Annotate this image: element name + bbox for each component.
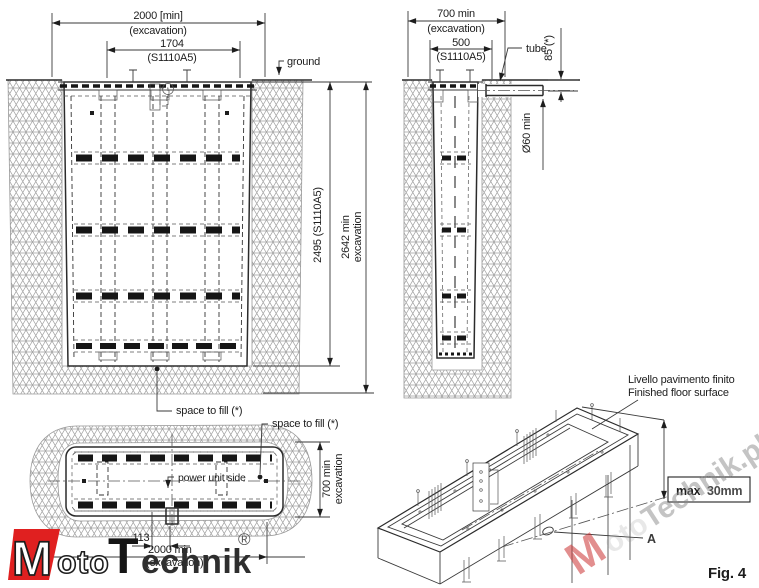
floor-label-en: Finished floor surface <box>628 387 729 399</box>
figure-label: Fig. 4 <box>708 565 747 582</box>
logo-echnik: echnik <box>141 543 252 581</box>
dim-text-plan-700-sub: excavation <box>333 454 345 505</box>
side-tube-label: tube <box>500 43 547 81</box>
side-dim-tube-depth: 85 (*) <box>543 28 578 102</box>
logo-letter-t: T <box>108 528 138 584</box>
dim-text-2642-sub: excavation <box>352 212 364 263</box>
dim-text-d60: Ø60 min <box>521 113 533 153</box>
front-dim-unit-width: 1704 (S1110A5) <box>107 38 240 78</box>
front-marker-left <box>90 111 94 115</box>
front-ground-label: ground <box>279 56 320 75</box>
front-fill-point <box>155 367 160 372</box>
plan-cross-members <box>74 452 276 511</box>
dim-text-2495: 2495 (S1110A5) <box>312 187 324 263</box>
mototechnik-logo: M oto T echnik ® <box>8 528 252 586</box>
front-columns <box>99 90 221 362</box>
dim-text-2000: 2000 [min] <box>133 10 183 22</box>
side-view: 700 min (excavation) 500 (S1110A5) tube … <box>402 8 580 398</box>
iso-floor-labels: Livello pavimento finito Finished floor … <box>592 374 735 429</box>
dim-text-85: 85 (*) <box>543 35 555 61</box>
side-lifting-pins <box>440 70 470 82</box>
plan-column-left <box>97 462 108 495</box>
front-space-to-fill-text: space to fill (*) <box>176 405 242 417</box>
drawing-canvas: 2000 [min] (excavation) 1704 (S1110A5) g… <box>0 0 759 588</box>
ground-label-text: ground <box>287 56 320 68</box>
logo-registered-mark: ® <box>238 530 251 549</box>
dim-text-700: 700 min <box>437 8 475 20</box>
dim-text-500-sub: (S1110A5) <box>436 51 485 63</box>
plan-marker-left <box>82 479 86 483</box>
plan-marker-right <box>264 479 268 483</box>
dim-text-2000-sub: (excavation) <box>129 25 187 37</box>
dim-text-2642: 2642 min <box>340 215 352 259</box>
side-tube <box>478 84 574 97</box>
logo-letter-m: M <box>12 533 52 586</box>
plan-space-to-fill-text: space to fill (*) <box>272 418 338 430</box>
dim-text-1704: 1704 <box>160 38 184 50</box>
dim-text-500: 500 <box>452 37 470 49</box>
side-dim-unit-width: 500 (S1110A5) <box>430 37 492 79</box>
front-view: 2000 [min] (excavation) 1704 (S1110A5) g… <box>6 10 374 417</box>
dim-text-700-sub: (excavation) <box>427 23 485 35</box>
logo-oto: oto <box>57 544 110 580</box>
side-dim-tube-diameter: Ø60 min <box>521 99 543 170</box>
front-marker-right <box>225 111 229 115</box>
plan-power-unit-label: power unit side <box>168 472 246 488</box>
front-cross-members <box>74 152 242 352</box>
floor-label-it: Livello pavimento finito <box>628 374 735 386</box>
front-dim-excavation-width: 2000 [min] (excavation) <box>52 10 265 77</box>
iso-interior-details <box>419 428 603 530</box>
power-unit-label-text: power unit side <box>178 472 246 484</box>
dim-text-1704-sub: (S1110A5) <box>147 52 196 64</box>
side-soil-hatch <box>404 80 511 398</box>
dim-text-plan-700: 700 min <box>321 460 333 498</box>
figure-4-technical-drawing: 2000 [min] (excavation) 1704 (S1110A5) g… <box>0 0 759 588</box>
